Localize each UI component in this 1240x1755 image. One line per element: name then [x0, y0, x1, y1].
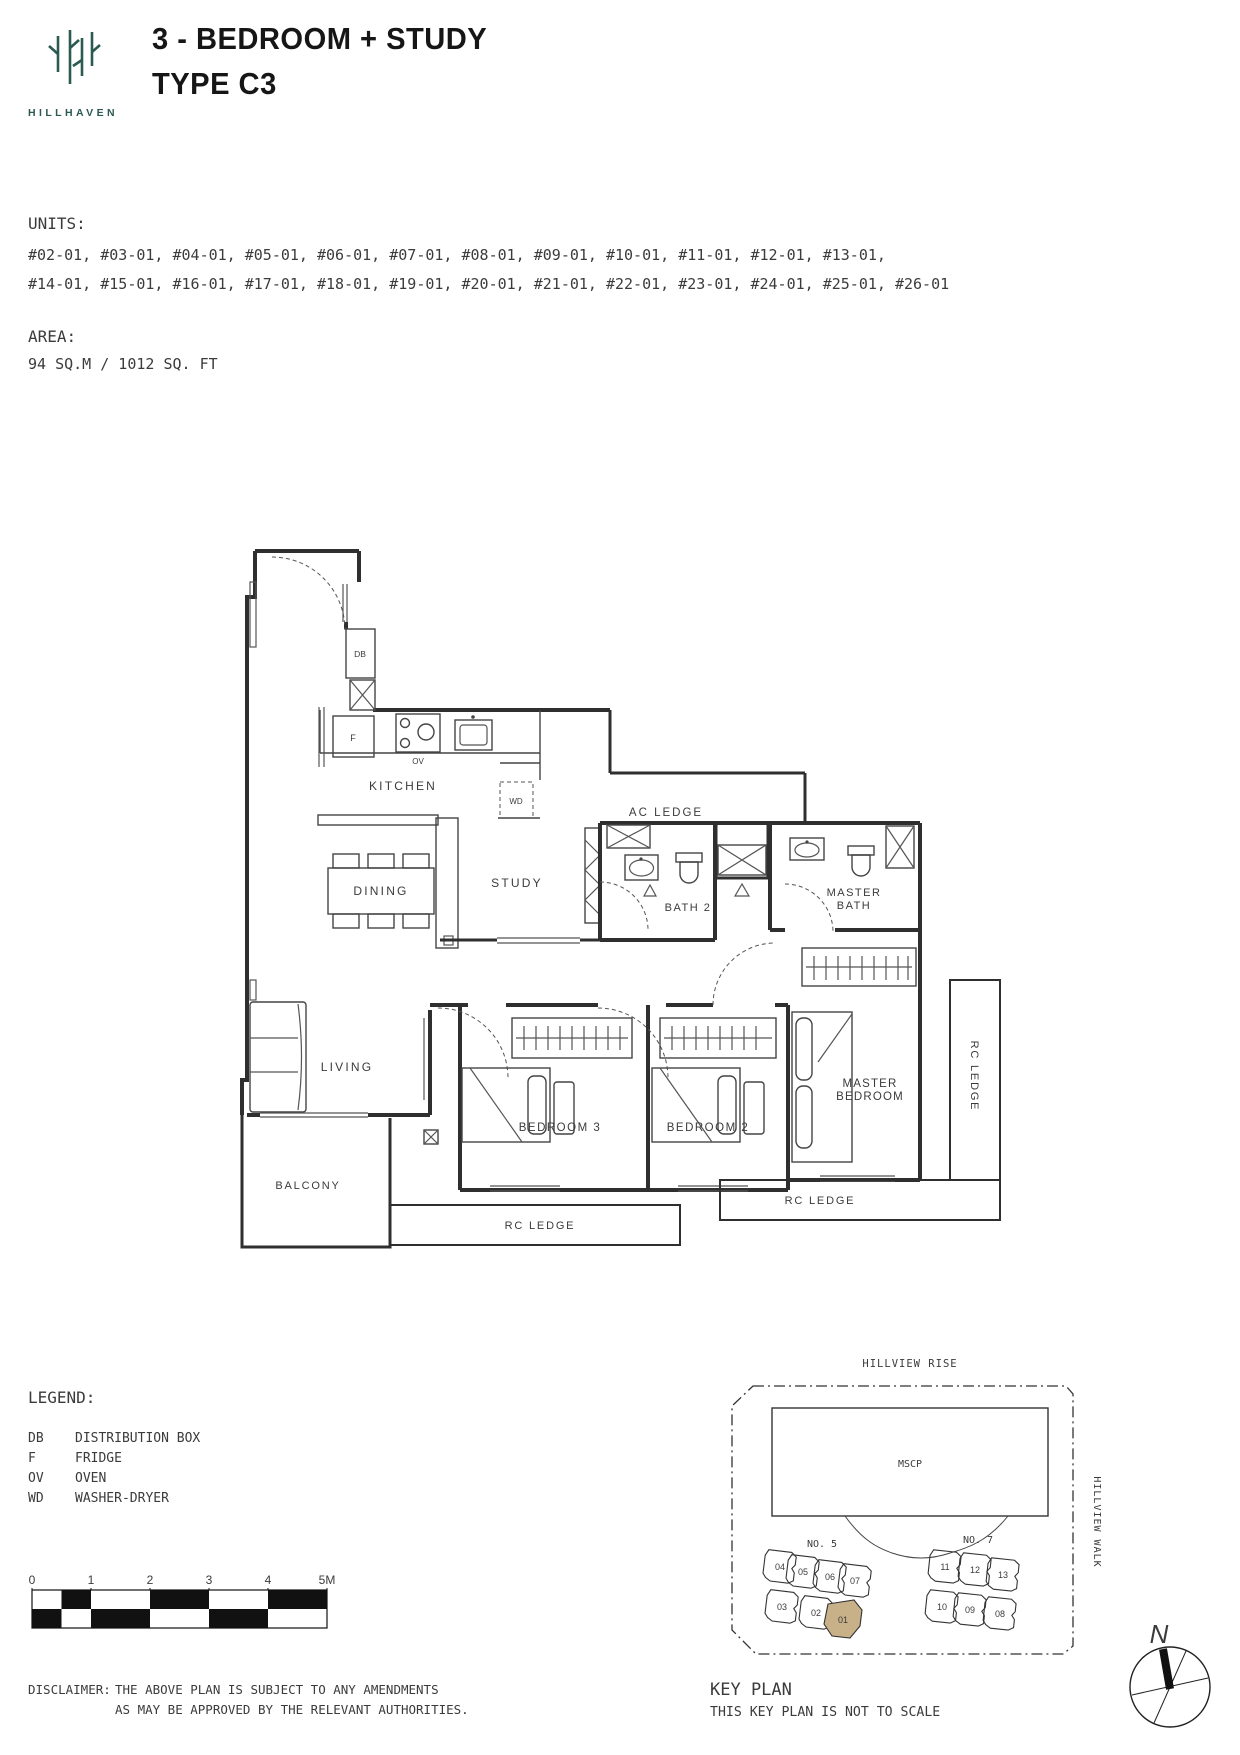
block-label: 01: [838, 1615, 848, 1625]
block-label: 06: [825, 1572, 835, 1582]
scale-bar: 0 1 2 3 4 5M: [27, 1572, 337, 1642]
north-arrow-icon: N: [1130, 1619, 1210, 1727]
legend-code: OV: [28, 1469, 75, 1489]
legend-row-ov: OV OVEN: [28, 1469, 200, 1489]
scale-tick-4: 4: [265, 1573, 272, 1587]
block-label: 03: [777, 1602, 787, 1612]
hillhaven-logo-icon: [28, 26, 118, 98]
mscp-label: MSCP: [898, 1459, 922, 1470]
bedroom3-area: BEDROOM 3: [438, 1008, 632, 1142]
master-bedroom-label-2: BEDROOM: [836, 1091, 904, 1103]
living-label: LIVING: [321, 1060, 374, 1074]
study-area: STUDY: [318, 815, 600, 948]
block-label: 11: [940, 1562, 949, 1572]
bedroom2-label: BEDROOM 2: [667, 1122, 750, 1134]
units-label: UNITS:: [28, 214, 949, 233]
master-bath-label-1: MASTER: [827, 887, 882, 899]
master-bedroom-label-1: MASTER: [842, 1078, 897, 1090]
area-label: AREA:: [28, 327, 218, 346]
fridge-label: F: [350, 733, 356, 743]
block-label: 13: [998, 1570, 1008, 1580]
disclaimer-line2: AS MAY BE APPROVED BY THE RELEVANT AUTHO…: [115, 1700, 469, 1720]
disclaimer-label: DISCLAIMER:: [28, 1680, 111, 1700]
block-label: 09: [965, 1605, 975, 1615]
rc-ledge-label-bottom: RC LEDGE: [505, 1220, 576, 1232]
page-title: 3 - BEDROOM + STUDY TYPE C3: [152, 16, 509, 106]
cluster-no5-label: NO. 5: [807, 1539, 837, 1550]
oven-label: OV: [412, 757, 424, 766]
key-plan-title: KEY PLAN: [710, 1680, 792, 1700]
bedroom3-label: BEDROOM 3: [519, 1122, 602, 1134]
legend-row-db: DB DISTRIBUTION BOX: [28, 1429, 200, 1449]
road-label-hillview-walk: HILLVIEW WALK: [1091, 1476, 1102, 1567]
cluster-no5: NO. 5 04 05 06 07 03 02 01: [762, 1539, 872, 1638]
legend-row-wd: WD WASHER-DRYER: [28, 1489, 200, 1509]
block-label: 12: [970, 1565, 980, 1575]
living-area: LIVING: [250, 980, 424, 1112]
area-value: 94 SQ.M / 1012 SQ. FT: [28, 355, 218, 373]
bath2-label: BATH 2: [665, 902, 712, 914]
units-line-1: #02-01, #03-01, #04-01, #05-01, #06-01, …: [28, 241, 949, 270]
scale-tick-1: 1: [88, 1573, 95, 1587]
bedroom2-area: BEDROOM 2: [598, 1008, 776, 1142]
rc-ledges: RC LEDGE RC LEDGE RC LEDGE: [390, 980, 1000, 1245]
scale-tick-3: 3: [206, 1573, 213, 1587]
block-label: 04: [775, 1562, 785, 1572]
master-bath-label-2: BATH: [837, 900, 872, 912]
rc-ledge-label-vertical: RC LEDGE: [968, 1041, 980, 1112]
legend-label: LEGEND:: [28, 1388, 200, 1407]
title-line2: TYPE C3: [152, 61, 487, 106]
legend-desc: DISTRIBUTION BOX: [75, 1429, 200, 1449]
bath2-area: BATH 2: [600, 823, 715, 940]
legend-code: WD: [28, 1489, 75, 1509]
kitchen-label: KITCHEN: [369, 779, 437, 793]
study-label: STUDY: [491, 876, 543, 890]
road-label-hillview-rise: HILLVIEW RISE: [862, 1358, 957, 1370]
floor-plan: DB F OV WD KITCHEN AC LEDGE: [240, 540, 1010, 1255]
block-label: 10: [937, 1602, 947, 1612]
scale-tick-0: 0: [29, 1573, 36, 1587]
logo-wordmark: HILLHAVEN: [28, 107, 118, 119]
block-label: 07: [850, 1576, 860, 1586]
key-plan-subtitle: THIS KEY PLAN IS NOT TO SCALE: [710, 1705, 940, 1720]
units-block: UNITS: #02-01, #03-01, #04-01, #05-01, #…: [28, 214, 949, 299]
legend-block: LEGEND: DB DISTRIBUTION BOX F FRIDGE OV …: [28, 1388, 200, 1509]
dining-area: DINING: [328, 854, 434, 928]
cluster-no7: NO. 7 11 12 13 10 09 08: [924, 1535, 1019, 1631]
scale-tick-5: 5M: [319, 1573, 336, 1587]
block-label: 08: [995, 1609, 1005, 1619]
site-boundary: [732, 1386, 1073, 1654]
brochure-page: { "header": { "logo_text": "HILLHAVEN", …: [0, 0, 1240, 1755]
services-shaft: [716, 823, 768, 896]
disclaimer-line1: THE ABOVE PLAN IS SUBJECT TO ANY AMENDME…: [115, 1680, 439, 1700]
north-label: N: [1150, 1619, 1169, 1649]
block-label: 02: [811, 1608, 821, 1618]
wd-label: WD: [509, 797, 523, 806]
rc-ledge-label-right: RC LEDGE: [785, 1195, 856, 1207]
balcony-area: BALCONY: [242, 1113, 438, 1247]
units-line-2: #14-01, #15-01, #16-01, #17-01, #18-01, …: [28, 270, 949, 299]
outer-walls: [242, 551, 920, 1190]
legend-desc: OVEN: [75, 1469, 106, 1489]
kitchen-area: DB F OV WD KITCHEN: [319, 629, 540, 818]
legend-code: DB: [28, 1429, 75, 1449]
dining-label: DINING: [353, 884, 408, 898]
scale-tick-2: 2: [147, 1573, 154, 1587]
legend-desc: FRIDGE: [75, 1449, 122, 1469]
master-bath-area: MASTER BATH: [770, 823, 920, 932]
title-line1: 3 - BEDROOM + STUDY: [152, 16, 487, 61]
hillhaven-logo: HILLHAVEN: [28, 26, 118, 126]
block-label: 05: [798, 1567, 808, 1577]
legend-row-f: F FRIDGE: [28, 1449, 200, 1469]
legend-desc: WASHER-DRYER: [75, 1489, 169, 1509]
balcony-label: BALCONY: [275, 1180, 340, 1192]
cluster-no7-label: NO. 7: [963, 1535, 993, 1546]
ac-ledge-label: AC LEDGE: [629, 807, 703, 819]
scale-bar-blocks: [32, 1588, 327, 1628]
db-label: DB: [354, 649, 366, 659]
legend-code: F: [28, 1449, 75, 1469]
entry-area: [250, 557, 347, 647]
area-block: AREA: 94 SQ.M / 1012 SQ. FT: [28, 327, 218, 373]
key-plan: HILLVIEW RISE MSCP NO. 5 04 05 06 07 03 …: [620, 1355, 1240, 1755]
